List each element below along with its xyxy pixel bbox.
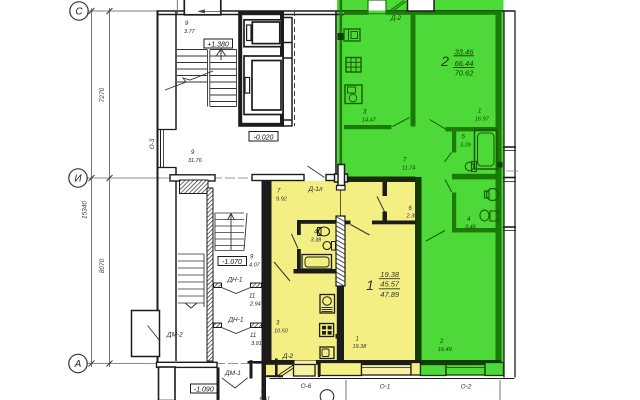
- svg-text:3.77: 3.77: [184, 29, 196, 35]
- svg-text:Д-2: Д-2: [282, 353, 294, 360]
- svg-text:19.38: 19.38: [380, 270, 400, 279]
- svg-text:14.47: 14.47: [362, 118, 377, 124]
- svg-text:10.50: 10.50: [274, 329, 289, 335]
- svg-text:11: 11: [249, 294, 255, 300]
- svg-text:2.94: 2.94: [249, 302, 261, 308]
- svg-text:66.44: 66.44: [455, 59, 474, 68]
- svg-text:33.46: 33.46: [455, 47, 475, 56]
- svg-text:И: И: [74, 174, 82, 185]
- svg-text:1: 1: [356, 337, 359, 343]
- svg-text:ДМ-1: ДМ-1: [224, 370, 241, 377]
- svg-text:-1.090: -1.090: [194, 386, 214, 393]
- svg-text:3.48: 3.48: [465, 225, 477, 231]
- svg-text:-0.020: -0.020: [254, 134, 274, 141]
- svg-text:45.57: 45.57: [380, 280, 400, 289]
- svg-text:19.38: 19.38: [353, 344, 368, 350]
- svg-text:О-2: О-2: [461, 384, 472, 391]
- svg-text:31.76: 31.76: [188, 158, 203, 164]
- svg-text:6.61: 6.61: [260, 397, 271, 400]
- svg-text:1: 1: [366, 277, 374, 293]
- svg-text:47.89: 47.89: [380, 290, 400, 299]
- svg-text:8070: 8070: [99, 258, 106, 273]
- svg-text:-1.070: -1.070: [222, 259, 242, 266]
- svg-text:1: 1: [478, 109, 481, 115]
- svg-text:16.97: 16.97: [475, 117, 490, 123]
- svg-text:2: 2: [440, 53, 449, 69]
- svg-text:11: 11: [250, 333, 256, 339]
- svg-text:О-6: О-6: [301, 383, 312, 390]
- svg-text:7270: 7270: [99, 87, 106, 102]
- svg-text:О-3: О-3: [149, 138, 156, 149]
- svg-text:+1.380: +1.380: [207, 41, 229, 48]
- svg-text:ДМ-2: ДМ-2: [166, 332, 183, 339]
- svg-text:9.92: 9.92: [276, 197, 287, 203]
- svg-text:2: 2: [439, 339, 444, 345]
- svg-text:О-1: О-1: [380, 384, 391, 391]
- svg-text:11.74: 11.74: [402, 166, 415, 172]
- svg-text:Д-2: Д-2: [390, 15, 402, 22]
- svg-text:3.91: 3.91: [251, 341, 262, 347]
- svg-text:Д-1л: Д-1л: [307, 186, 322, 193]
- svg-text:3.29: 3.29: [460, 143, 471, 149]
- svg-text:15340: 15340: [82, 201, 89, 219]
- svg-text:А: А: [74, 359, 82, 370]
- svg-text:С: С: [75, 7, 83, 18]
- svg-text:ДН-1: ДН-1: [226, 277, 242, 284]
- svg-text:2.39: 2.39: [406, 214, 418, 220]
- svg-text:70.62: 70.62: [455, 68, 475, 77]
- svg-text:4.07: 4.07: [249, 263, 261, 269]
- svg-text:16.49: 16.49: [438, 347, 452, 353]
- svg-text:3.38: 3.38: [311, 238, 323, 244]
- svg-text:ДН-1: ДН-1: [227, 317, 243, 324]
